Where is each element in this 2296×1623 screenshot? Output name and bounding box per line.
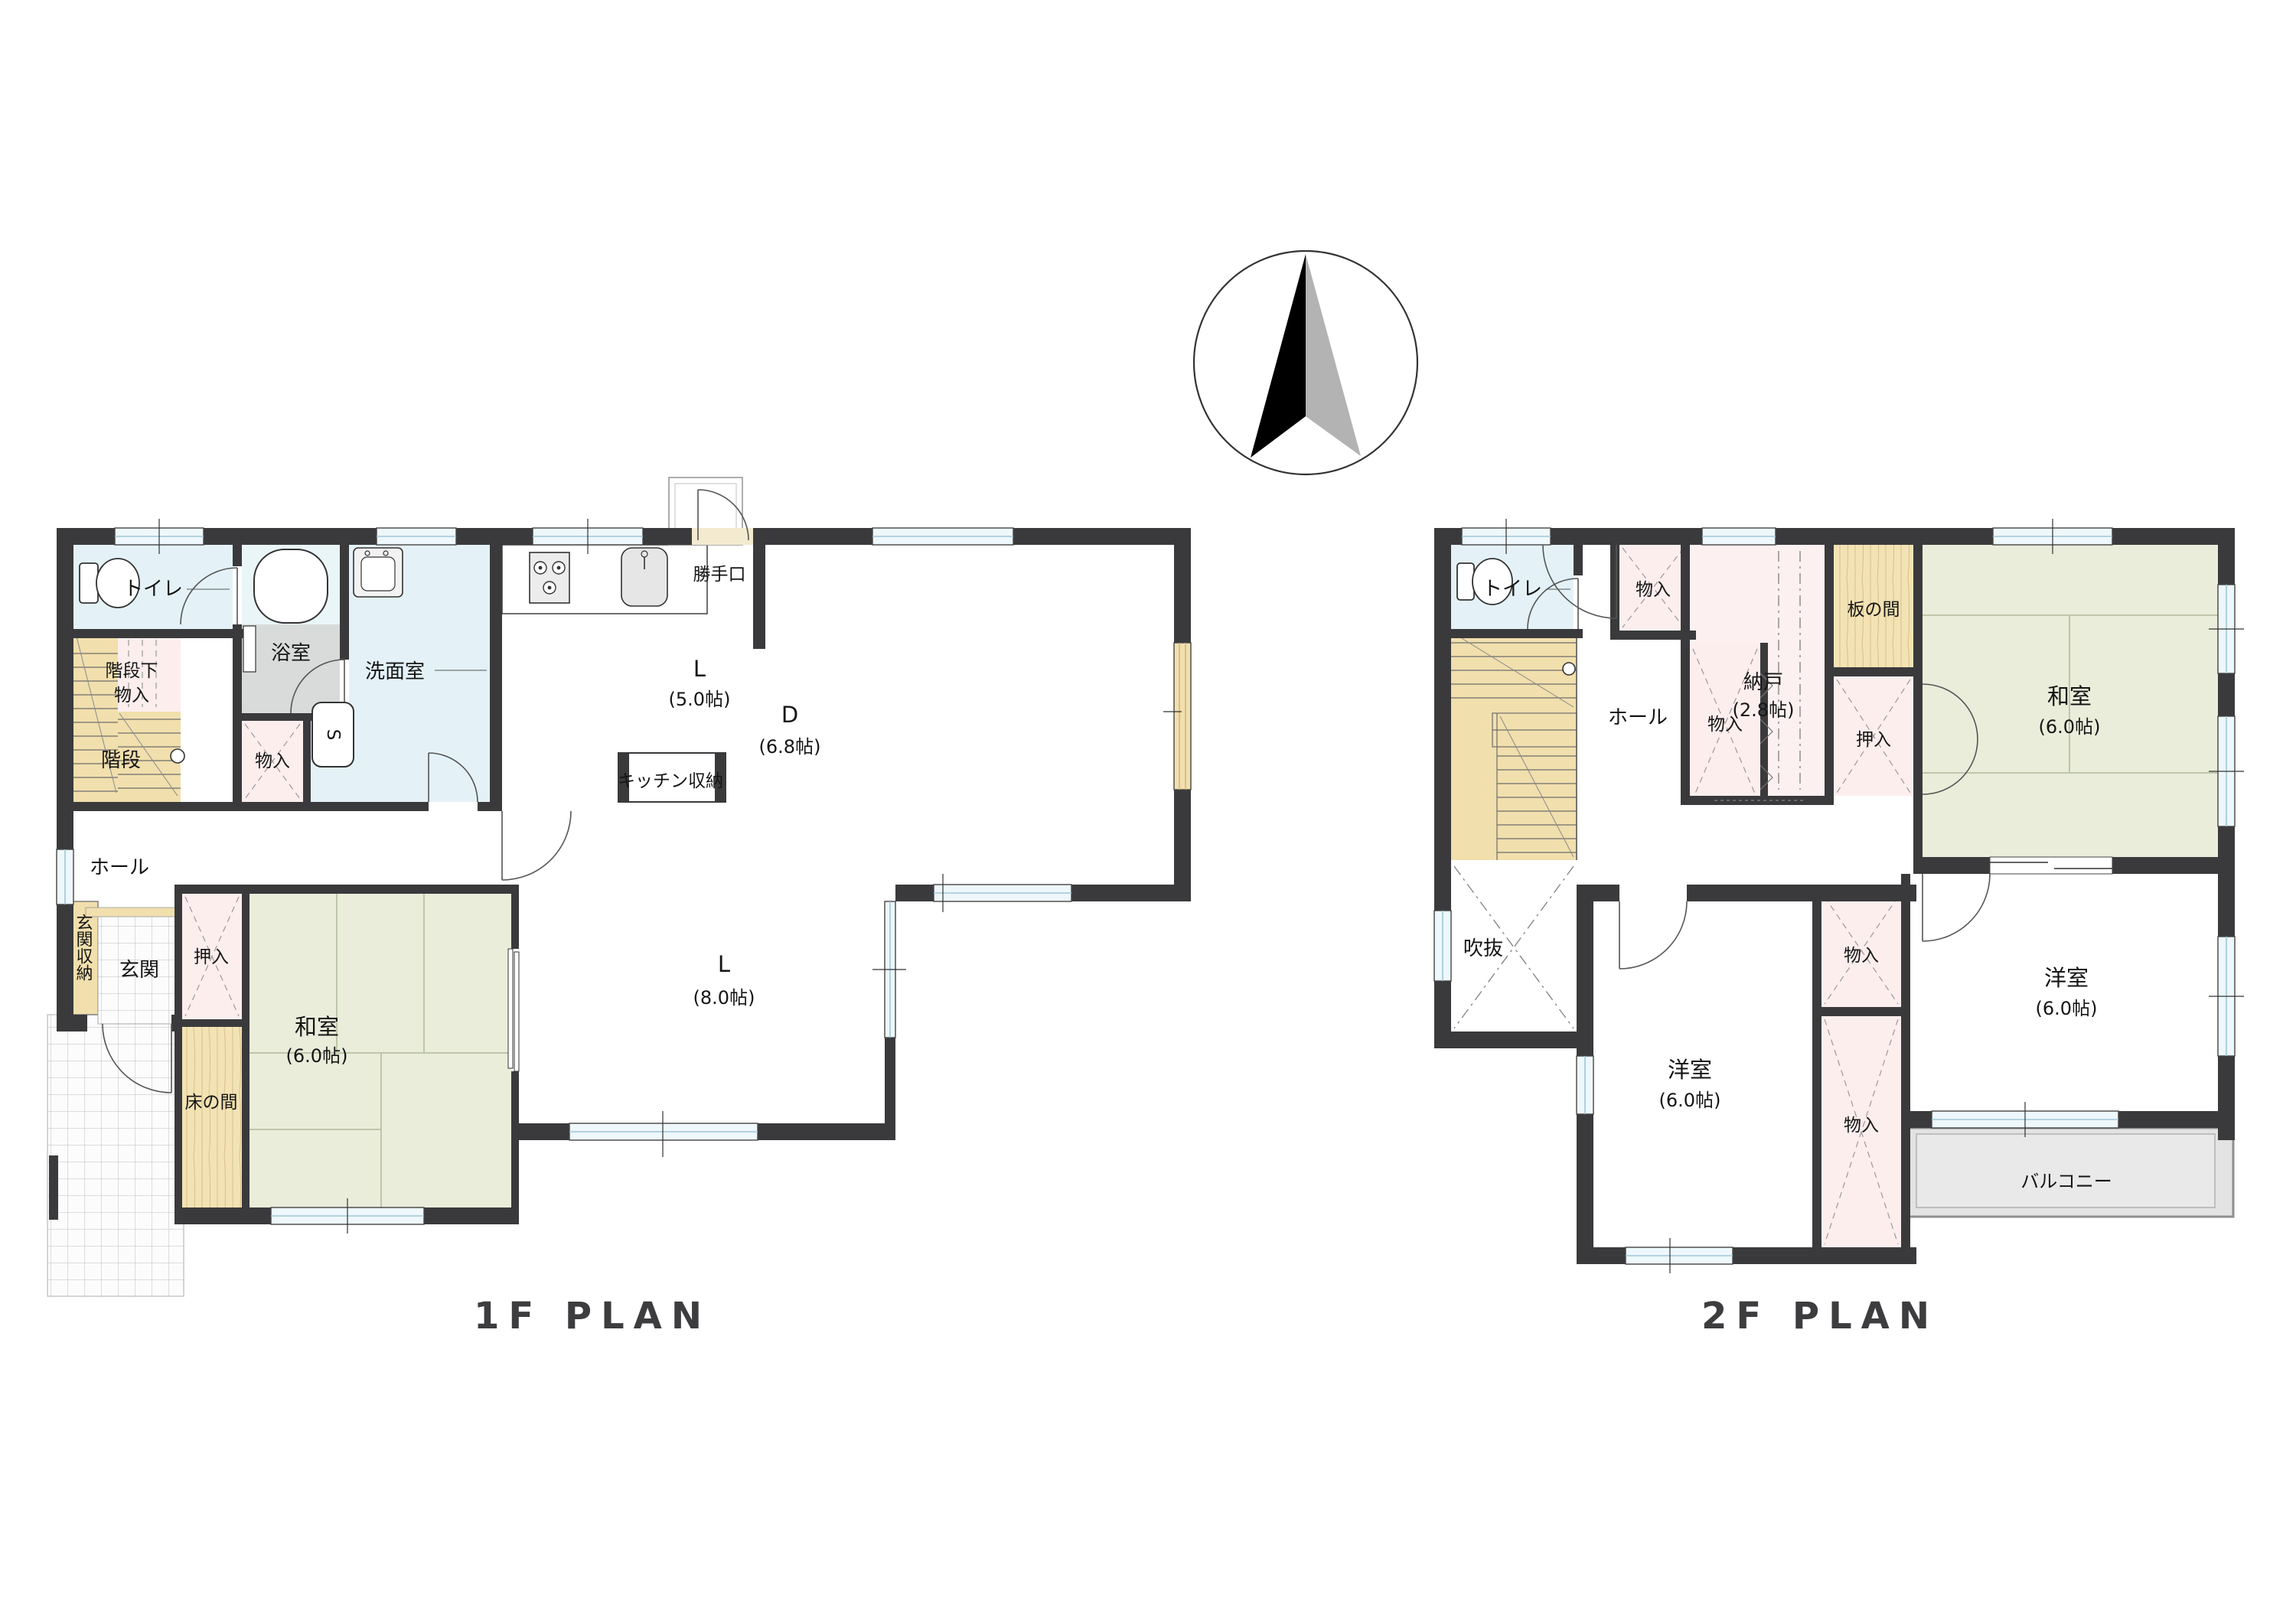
label-tokonoma: 床の間 [185, 1093, 238, 1113]
compass-north-arrow [1194, 251, 1417, 474]
label-hall-2f: ホール [1608, 706, 1668, 729]
label-storage-top-2f: 物入 [1636, 580, 1671, 600]
label-western-left-size: (6.0帖) [1659, 1090, 1721, 1111]
kitchen-sink-icon [621, 548, 667, 606]
floorplan-canvas: トイレ 階段下 物入 階段 ホール 玄関収納 玄関 押入 床の間 和室 (6.0… [0, 0, 2296, 1623]
title-2f-plan: 2F PLAN [1701, 1295, 1939, 1338]
2f-storage-mid-wall [1760, 643, 1768, 805]
2f-stairs-area [1451, 631, 1577, 860]
label-itanoma: 板の間 [1848, 600, 1900, 620]
label-back-door: 勝手口 [693, 565, 746, 585]
label-dining-size: (6.8帖) [759, 736, 821, 758]
label-washroom: 洗面室 [365, 660, 425, 683]
title-1f-plan: 1F PLAN [474, 1295, 711, 1338]
label-living-size: (8.0帖) [693, 987, 755, 1009]
label-dining-d: D [781, 702, 798, 728]
1f-porch-tile [47, 1015, 184, 1296]
floor-1f-plan: トイレ 階段下 物入 階段 ホール 玄関収納 玄関 押入 床の間 和室 (6.0… [47, 477, 1191, 1338]
label-bath: 浴室 [271, 642, 311, 665]
label-storage-lower: 物入 [1844, 1116, 1879, 1136]
1f-bath-tile-floor [242, 624, 340, 713]
1f-sliding-doors [508, 949, 519, 1071]
label-living-l: L [718, 951, 730, 977]
label-storage-upper: 物入 [1844, 946, 1879, 966]
1f-porch-pillar [49, 1155, 58, 1220]
label-entrance: 玄関 [119, 959, 159, 982]
label-washitsu-1f-size: (6.0帖) [286, 1045, 348, 1067]
label-washitsu-2f-size: (6.0帖) [2039, 716, 2101, 738]
label-western-right-size: (6.0帖) [2036, 998, 2098, 1019]
1f-tokonoma-alcove [182, 1027, 242, 1207]
label-understair-2: 物入 [114, 686, 149, 706]
label-storage-1f: 物入 [255, 751, 290, 771]
label-kitchen-size: (5.0帖) [669, 689, 731, 710]
label-western-right: 洋室 [2044, 965, 2089, 991]
label-storeroom: 納戸 [1743, 671, 1783, 694]
label-toilet-2f: トイレ [1482, 578, 1542, 601]
label-storeroom-size: (2.8帖) [1733, 699, 1795, 721]
stove-icon [530, 552, 569, 603]
label-washitsu-2f: 和室 [2047, 683, 2092, 709]
label-hall-1f: ホール [90, 856, 149, 879]
label-western-left: 洋室 [1668, 1057, 1712, 1083]
floorplan-page: トイレ 階段下 物入 階段 ホール 玄関収納 玄関 押入 床の間 和室 (6.0… [0, 0, 2296, 1623]
label-entrance-storage: 玄関収納 [73, 914, 93, 981]
label-kitchen-l: L [693, 656, 706, 682]
label-balcony: バルコニー [2020, 1171, 2112, 1192]
label-understair-1: 階段下 [106, 661, 158, 681]
label-stairs-1f: 階段 [101, 749, 141, 772]
label-washitsu-1f: 和室 [295, 1014, 339, 1040]
wash-basin-icon [354, 548, 403, 597]
label-kitchen-storage: キッチン収納 [618, 771, 723, 791]
2f-sliding-doors [1990, 857, 2112, 874]
label-toilet-1f: トイレ [123, 578, 183, 601]
label-oshiire-1f: 押入 [194, 947, 229, 967]
shower-unit-icon [243, 626, 256, 672]
1f-entrance-step [86, 908, 181, 917]
label-oshiire-2f: 押入 [1856, 730, 1891, 750]
1f-dining-side-window [1174, 643, 1191, 790]
bathtub-icon [254, 549, 328, 623]
label-washer-s: S [323, 729, 343, 741]
label-void: 吹抜 [1463, 937, 1503, 960]
floor-2f-plan: トイレ 物入 ホール 物入 納戸 (2.8帖) 板の間 押入 和室 (6.0帖)… [1434, 519, 2244, 1338]
